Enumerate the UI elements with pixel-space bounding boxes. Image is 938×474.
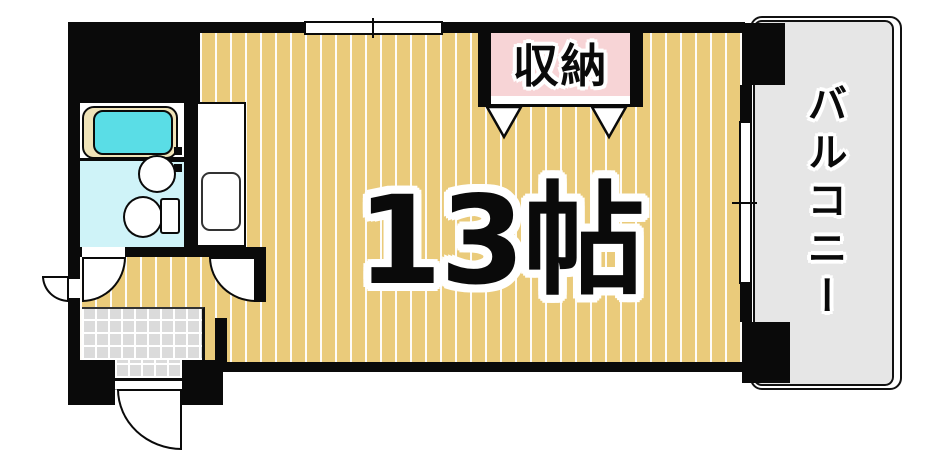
bath-faucet-handle-icon bbox=[171, 157, 185, 162]
closet-label-box: 収納 bbox=[478, 28, 643, 98]
room-size-label: 13帖 bbox=[357, 142, 643, 319]
entrance-block-left bbox=[68, 360, 115, 405]
bathroom-doorway-gap bbox=[82, 247, 125, 257]
service-door-swing bbox=[42, 276, 69, 302]
floor-plan: バルコニー 収納 bbox=[0, 0, 938, 474]
wall-right-upper-thin bbox=[740, 85, 752, 123]
bathtub-water bbox=[93, 110, 173, 155]
wall-stub-hall-right bbox=[256, 247, 266, 302]
toilet-tank bbox=[160, 198, 180, 234]
wall-left-lower bbox=[68, 300, 80, 360]
bath-faucet-icon bbox=[174, 147, 182, 155]
entrance-tile-floor bbox=[82, 307, 205, 360]
closet-door-markers bbox=[478, 105, 644, 141]
window-top-tick bbox=[372, 18, 374, 38]
entrance-tile-step bbox=[115, 360, 182, 378]
service-doorway-gap bbox=[68, 277, 80, 300]
closet-label: 収納 bbox=[513, 30, 609, 96]
wall-bathroom-right bbox=[184, 103, 196, 247]
entrance-block-right bbox=[182, 360, 223, 405]
window-right-tick bbox=[732, 202, 757, 204]
entrance-door-swing bbox=[117, 389, 182, 450]
toilet-bowl bbox=[123, 196, 163, 238]
kitchen-sink bbox=[201, 172, 241, 231]
wall-chunk-top-right bbox=[742, 23, 785, 85]
utility-block-top-left bbox=[68, 23, 200, 103]
room-size-label-box: 13帖 bbox=[270, 148, 730, 313]
wall-bottom bbox=[215, 362, 742, 372]
wall-chunk-bottom-right bbox=[742, 322, 790, 383]
wall-stub-entrance bbox=[215, 318, 227, 362]
balcony-label: バルコニー bbox=[804, 83, 844, 323]
wall-right-lower-thin bbox=[740, 282, 752, 322]
washbasin bbox=[138, 155, 176, 193]
